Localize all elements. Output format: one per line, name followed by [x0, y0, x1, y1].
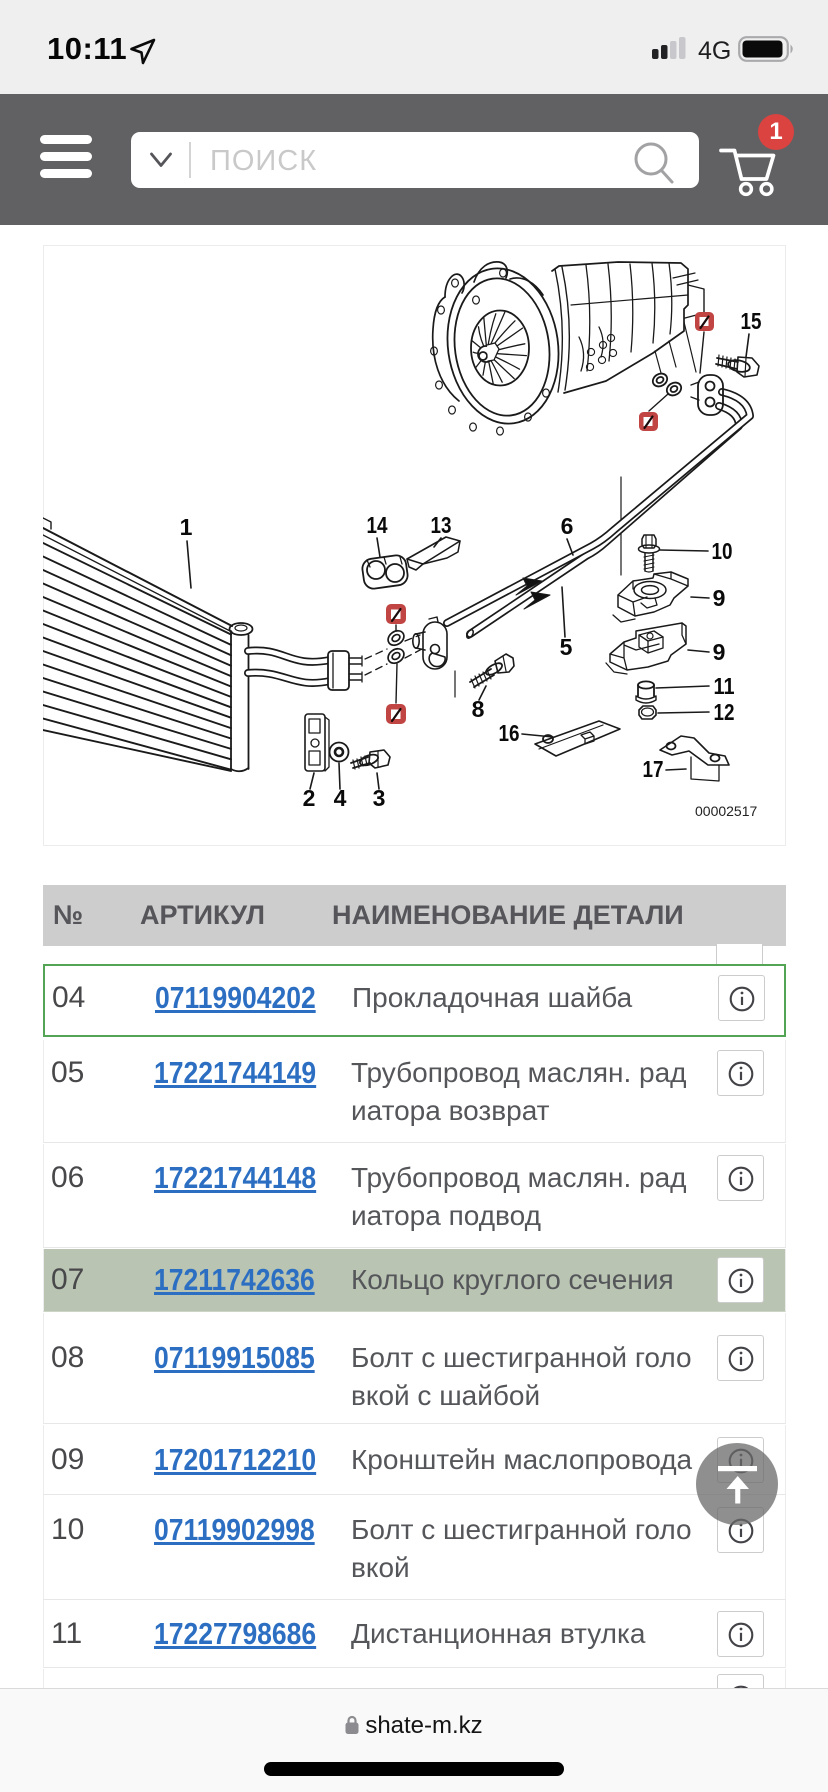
svg-text:14: 14 [367, 512, 388, 538]
svg-text:2: 2 [303, 785, 316, 811]
svg-text:5: 5 [560, 634, 573, 660]
svg-text:10: 10 [712, 538, 733, 564]
svg-text:8: 8 [472, 696, 485, 722]
svg-text:9: 9 [713, 585, 726, 611]
svg-text:1: 1 [180, 514, 193, 540]
svg-text:00002517: 00002517 [695, 803, 758, 819]
svg-text:9: 9 [713, 639, 726, 665]
svg-text:11: 11 [714, 673, 735, 699]
svg-text:15: 15 [741, 308, 762, 334]
svg-text:12: 12 [714, 699, 735, 725]
svg-text:17: 17 [643, 756, 664, 782]
svg-text:13: 13 [431, 512, 452, 538]
svg-text:16: 16 [499, 720, 520, 746]
svg-text:6: 6 [561, 513, 574, 539]
